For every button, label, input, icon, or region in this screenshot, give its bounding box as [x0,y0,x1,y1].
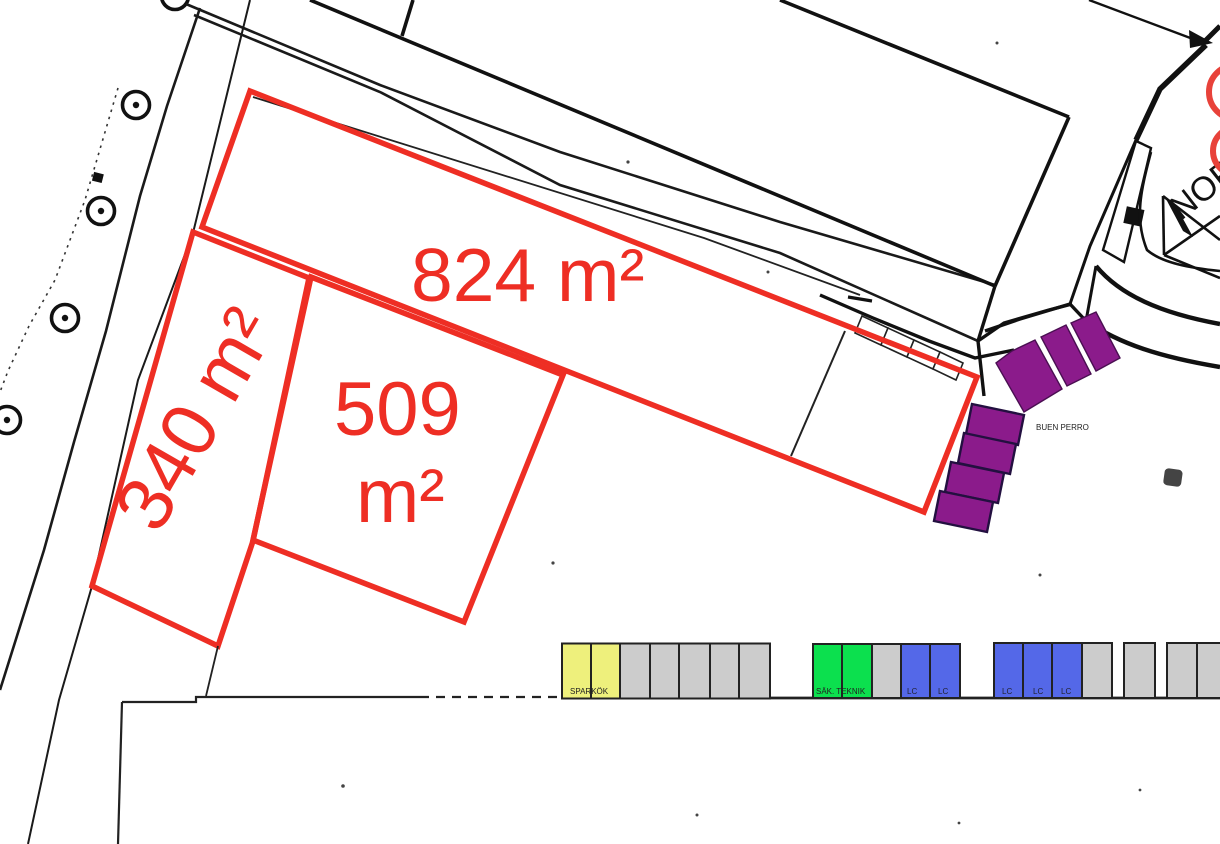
svg-text:SPARKÖK: SPARKÖK [570,687,609,696]
svg-text:SÄK. TEKNIK: SÄK. TEKNIK [816,687,866,696]
svg-text:m²: m² [356,454,445,539]
svg-text:BUEN PERRO: BUEN PERRO [1036,423,1089,432]
svg-text:LC: LC [1002,687,1012,696]
svg-text:509: 509 [334,367,461,452]
svg-text:LC: LC [1061,687,1071,696]
svg-text:LC: LC [938,687,948,696]
svg-text:LC: LC [1033,687,1043,696]
svg-text:LC: LC [907,687,917,696]
svg-text:824 m²: 824 m² [411,233,644,317]
